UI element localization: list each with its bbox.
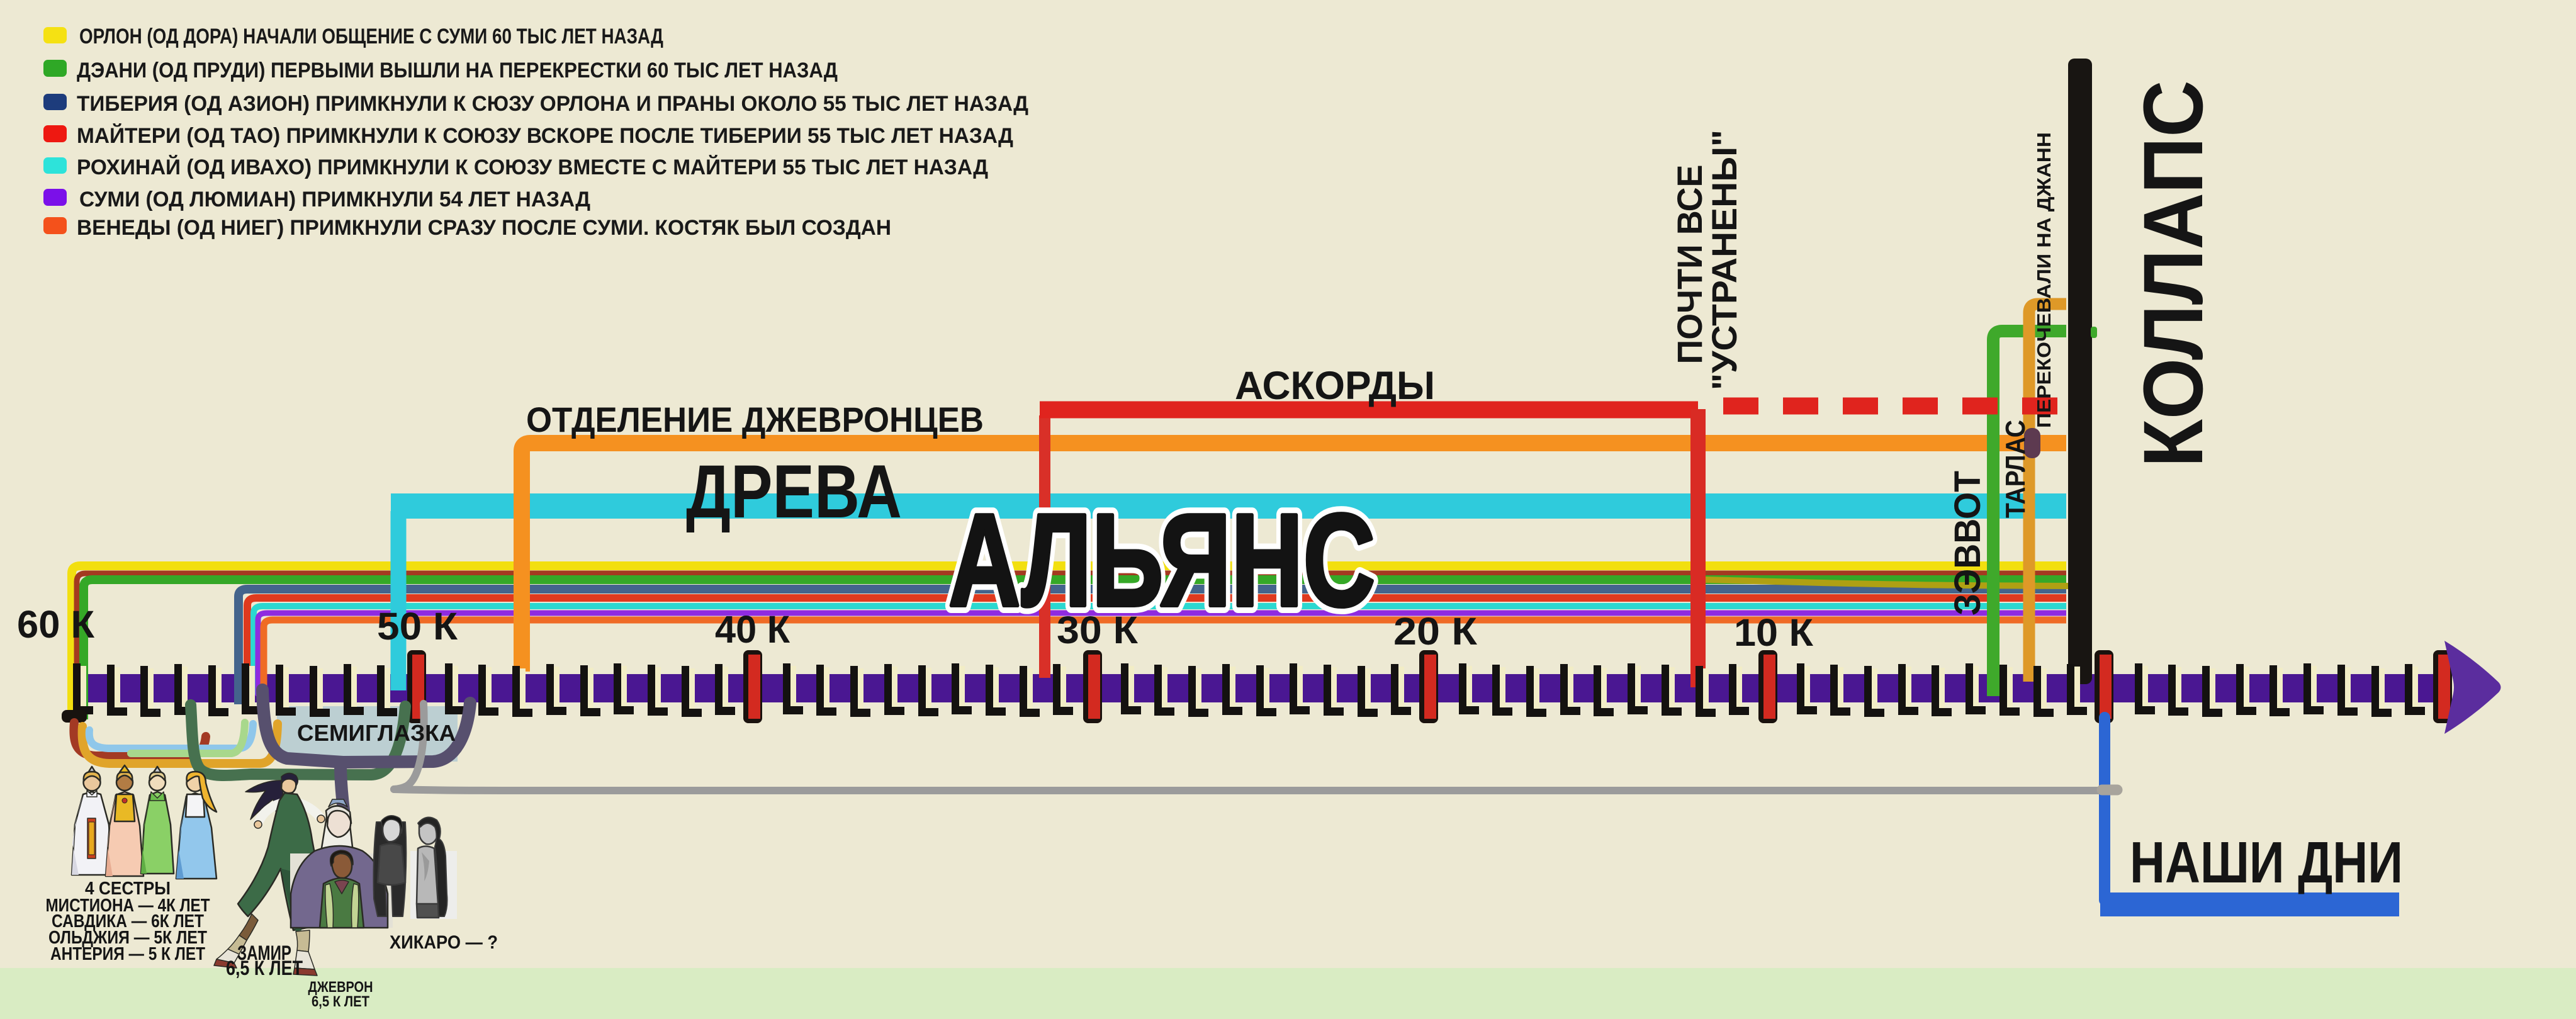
svg-text:6,5 К ЛЕТ: 6,5 К ЛЕТ — [226, 957, 303, 979]
svg-text:МАЙТЕРИ (ОД ТАО) ПРИМКНУЛИ К С: МАЙТЕРИ (ОД ТАО) ПРИМКНУЛИ К СОЮЗУ ВСКОР… — [77, 123, 1013, 148]
svg-text:40 К: 40 К — [715, 608, 790, 651]
svg-text:60 К: 60 К — [17, 603, 95, 646]
svg-text:СЕМИГЛАЗКА: СЕМИГЛАЗКА — [297, 720, 456, 746]
svg-text:АНТЕРИЯ — 5 К ЛЕТ: АНТЕРИЯ — 5 К ЛЕТ — [50, 944, 205, 964]
svg-text:"УСТРАНЕНЫ": "УСТРАНЕНЫ" — [1704, 130, 1744, 390]
svg-text:ДЭАНИ (ОД ПРУДИ) ПЕРВЫМИ ВЫШЛИ: ДЭАНИ (ОД ПРУДИ) ПЕРВЫМИ ВЫШЛИ НА ПЕРЕКР… — [77, 59, 838, 82]
svg-text:КОЛЛАПС: КОЛЛАПС — [2127, 81, 2220, 468]
svg-text:ДРЕВА: ДРЕВА — [686, 449, 902, 534]
svg-text:ТИБЕРИЯ (ОД АЗИОН) ПРИМКНУЛИ К: ТИБЕРИЯ (ОД АЗИОН) ПРИМКНУЛИ К СЮЗУ ОРЛО… — [77, 92, 1028, 116]
svg-text:ТАРЛАС: ТАРЛАС — [2000, 420, 2031, 518]
svg-text:ХИКАРО — ?: ХИКАРО — ? — [390, 932, 498, 953]
svg-text:6,5 К ЛЕТ: 6,5 К ЛЕТ — [312, 993, 369, 1010]
svg-text:30 К: 30 К — [1057, 609, 1139, 651]
svg-text:ПЕРЕКОЧЕВАЛИ НА ДЖАНН: ПЕРЕКОЧЕВАЛИ НА ДЖАНН — [2033, 132, 2055, 428]
svg-text:ОРЛОН (ОД ДОРА) НАЧАЛИ ОБЩЕНИЕ: ОРЛОН (ОД ДОРА) НАЧАЛИ ОБЩЕНИЕ С СУМИ 60… — [79, 25, 663, 48]
svg-text:СУМИ (ОД ЛЮМИАН) ПРИМКНУЛИ 54: СУМИ (ОД ЛЮМИАН) ПРИМКНУЛИ 54 ЛЕТ НАЗАД — [79, 188, 590, 211]
svg-text:НАШИ ДНИ: НАШИ ДНИ — [2130, 830, 2403, 895]
svg-text:ОТДЕЛЕНИЕ ДЖЕВРОНЦЕВ: ОТДЕЛЕНИЕ ДЖЕВРОНЦЕВ — [526, 400, 984, 439]
svg-text:ВЕНЕДЫ (ОД НИЕГ) ПРИМКНУЛИ СРА: ВЕНЕДЫ (ОД НИЕГ) ПРИМКНУЛИ СРАЗУ ПОСЛЕ С… — [77, 216, 891, 240]
svg-text:ПОЧТИ ВСЕ: ПОЧТИ ВСЕ — [1670, 165, 1709, 364]
svg-text:АЛЬЯНС: АЛЬЯНС — [948, 487, 1375, 634]
svg-text:10 К: 10 К — [1734, 611, 1814, 654]
svg-text:ЗЭВВОТ: ЗЭВВОТ — [1947, 471, 1988, 616]
svg-text:50 К: 50 К — [377, 605, 458, 648]
svg-text:20 К: 20 К — [1393, 610, 1478, 653]
svg-text:РОХИНАЙ (ОД ИВАХО) ПРИМКНУЛИ К: РОХИНАЙ (ОД ИВАХО) ПРИМКНУЛИ К СОЮЗУ ВМЕ… — [77, 155, 988, 179]
svg-text:АСКОРДЫ: АСКОРДЫ — [1235, 364, 1435, 408]
